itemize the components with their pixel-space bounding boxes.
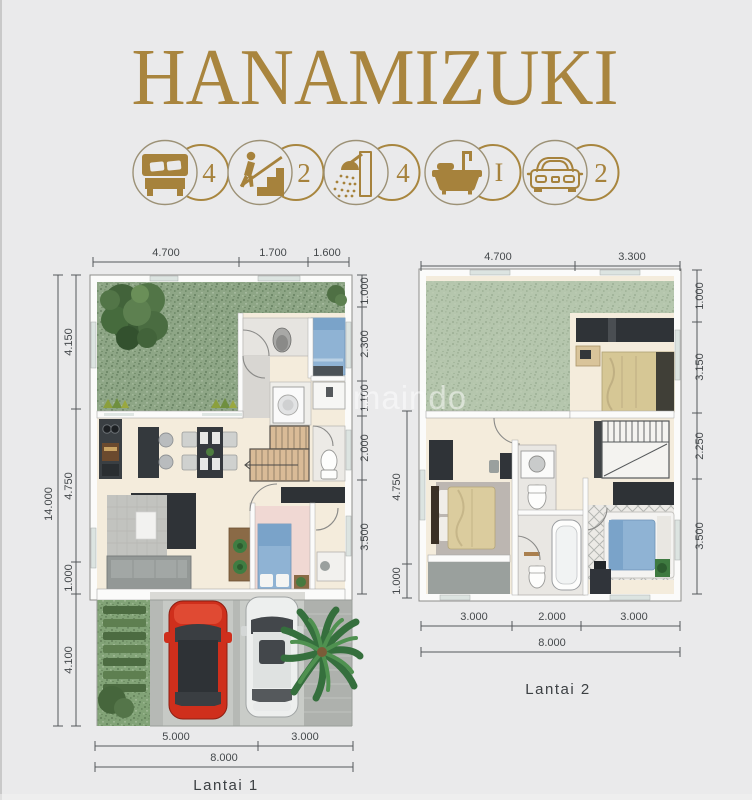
svg-text:2.000: 2.000 <box>538 611 566 623</box>
svg-text:Lantai 1: Lantai 1 <box>193 777 258 794</box>
svg-text:1.000: 1.000 <box>359 277 371 305</box>
svg-text:HANAMIZUKI: HANAMIZUKI <box>132 34 619 122</box>
svg-text:1.000: 1.000 <box>391 567 403 595</box>
svg-text:3.000: 3.000 <box>291 731 319 743</box>
svg-text:3.150: 3.150 <box>694 353 706 381</box>
svg-text:8.000: 8.000 <box>210 752 238 764</box>
svg-text:4.750: 4.750 <box>391 473 403 501</box>
svg-text:3.300: 3.300 <box>618 251 646 263</box>
svg-text:1.000: 1.000 <box>63 564 75 592</box>
svg-text:1.700: 1.700 <box>259 247 287 259</box>
svg-text:3.000: 3.000 <box>620 611 648 623</box>
svg-text:2.250: 2.250 <box>694 432 706 460</box>
svg-text:14.000: 14.000 <box>43 487 55 521</box>
svg-text:1.000: 1.000 <box>694 282 706 310</box>
svg-text:1.600: 1.600 <box>313 247 341 259</box>
svg-text:4.700: 4.700 <box>484 251 512 263</box>
svg-text:2: 2 <box>297 158 311 188</box>
svg-text:Lantai 2: Lantai 2 <box>525 681 590 698</box>
svg-text:4.750: 4.750 <box>63 472 75 500</box>
svg-text:2: 2 <box>594 158 608 188</box>
svg-text:2.000: 2.000 <box>359 434 371 462</box>
svg-text:3.000: 3.000 <box>460 611 488 623</box>
svg-text:maindo: maindo <box>353 379 467 416</box>
svg-text:4.100: 4.100 <box>63 646 75 674</box>
svg-text:3.500: 3.500 <box>359 523 371 551</box>
svg-text:2.300: 2.300 <box>359 330 371 358</box>
svg-text:8.000: 8.000 <box>538 637 566 649</box>
svg-text:4.700: 4.700 <box>152 247 180 259</box>
svg-text:4.150: 4.150 <box>63 328 75 356</box>
svg-text:5.000: 5.000 <box>162 731 190 743</box>
svg-text:4: 4 <box>396 158 410 188</box>
svg-text:I: I <box>495 158 504 187</box>
svg-text:4: 4 <box>202 158 216 188</box>
svg-text:3.500: 3.500 <box>694 522 706 550</box>
